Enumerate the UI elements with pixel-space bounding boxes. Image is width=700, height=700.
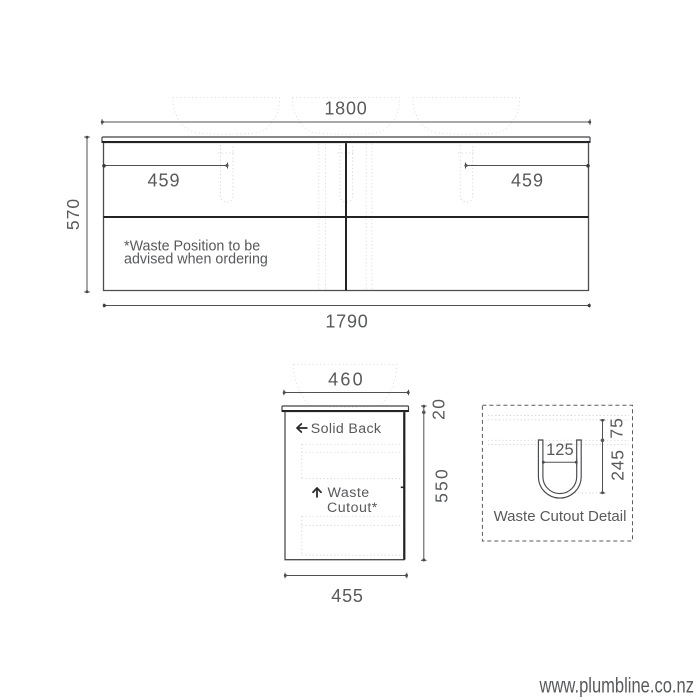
svg-text:1800: 1800 xyxy=(324,99,367,119)
svg-text:125: 125 xyxy=(546,441,574,459)
svg-text:Solid Back: Solid Back xyxy=(311,421,382,437)
svg-text:570: 570 xyxy=(63,198,83,230)
svg-text:Waste Cutout Detail: Waste Cutout Detail xyxy=(494,508,627,525)
svg-text:Cutout*: Cutout* xyxy=(327,500,378,516)
svg-text:75: 75 xyxy=(607,417,627,438)
svg-text:advised when ordering: advised when ordering xyxy=(124,251,268,267)
svg-text:455: 455 xyxy=(331,586,363,606)
svg-text:20: 20 xyxy=(429,398,449,420)
svg-text:459: 459 xyxy=(511,171,544,191)
svg-text:550: 550 xyxy=(432,467,452,503)
svg-text:459: 459 xyxy=(147,171,180,191)
svg-text:245: 245 xyxy=(607,449,627,481)
svg-text:www.plumbline.co.nz: www.plumbline.co.nz xyxy=(539,674,694,698)
svg-text:460: 460 xyxy=(328,369,365,389)
svg-text:Waste: Waste xyxy=(328,485,370,501)
svg-text:1790: 1790 xyxy=(325,312,368,332)
